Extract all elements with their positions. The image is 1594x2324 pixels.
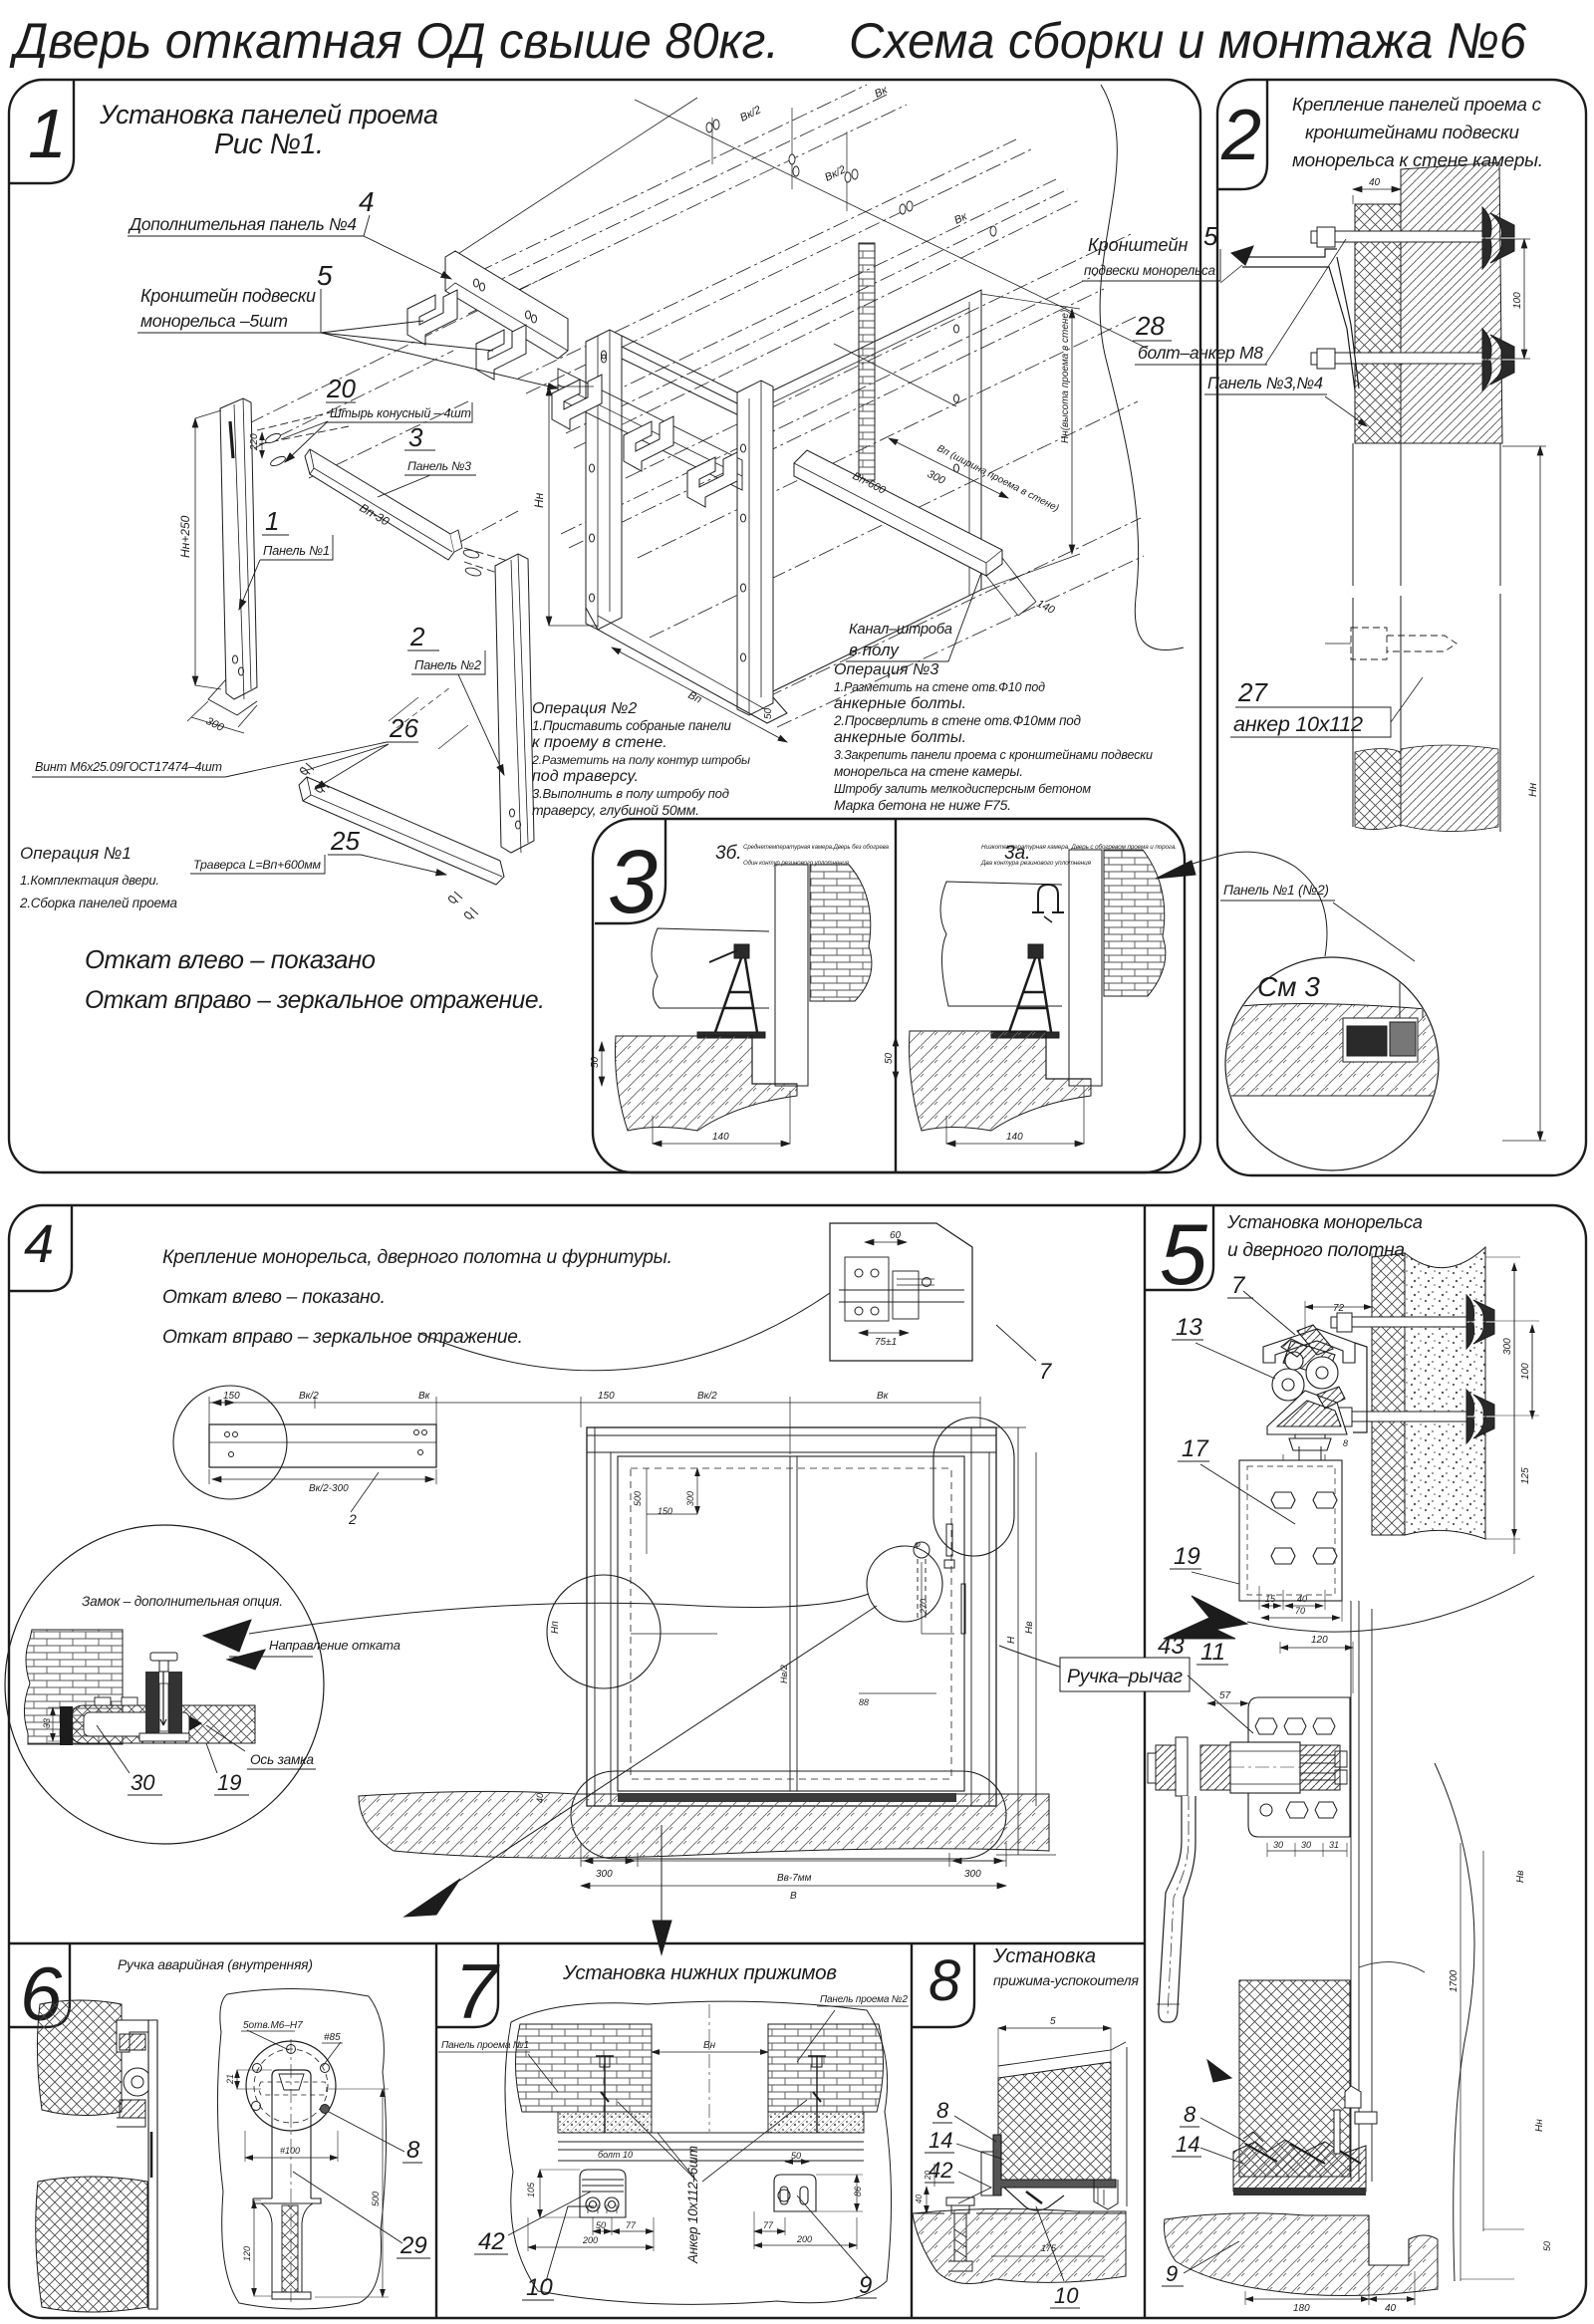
svg-text:Установка нижних прижимов: Установка нижних прижимов	[562, 1961, 837, 1984]
svg-text:4: 4	[24, 1214, 54, 1274]
svg-text:Канал–штроба: Канал–штроба	[849, 622, 952, 638]
svg-text:50: 50	[884, 1052, 895, 1064]
svg-text:40: 40	[915, 2195, 924, 2203]
svg-text:30: 30	[131, 1770, 155, 1795]
svg-text:9: 9	[859, 2272, 872, 2299]
svg-text:19: 19	[217, 1770, 241, 1795]
svg-text:5отв.М6–Н7: 5отв.М6–Н7	[243, 2020, 303, 2031]
svg-text:анкерные болты.: анкерные болты.	[834, 729, 966, 746]
svg-text:Нв: Нв	[1515, 1871, 1526, 1883]
svg-text:77: 77	[763, 2220, 774, 2230]
svg-text:10: 10	[1054, 2283, 1079, 2308]
svg-text:75±1: 75±1	[875, 1337, 897, 1348]
svg-text:Два контура резинового уплотне: Два контура резинового уплотнения	[980, 860, 1092, 867]
svg-text:200: 200	[582, 2235, 598, 2245]
svg-text:150: 150	[658, 1506, 672, 1516]
svg-text:Ручка–рычаг: Ручка–рычаг	[1067, 1666, 1183, 1687]
svg-text:Установка панелей проема: Установка панелей проема	[99, 100, 438, 129]
svg-text:50: 50	[791, 2151, 801, 2161]
svg-text:Вк: Вк	[418, 1391, 431, 1402]
svg-text:Откат вправо – зеркальное отра: Откат вправо – зеркальное отражение.	[162, 1327, 523, 1348]
svg-text:анкер 10х112: анкер 10х112	[1233, 711, 1363, 736]
svg-text:См 3: См 3	[1257, 971, 1320, 1002]
svg-text:Траверса L=Вп+600мм: Траверса L=Вп+600мм	[193, 858, 322, 872]
svg-text:1: 1	[28, 95, 67, 172]
svg-text:25: 25	[330, 826, 360, 856]
svg-text:150: 150	[598, 1391, 615, 1402]
svg-text:Кронштейн подвески: Кронштейн подвески	[140, 286, 316, 306]
svg-text:40: 40	[1297, 1594, 1307, 1604]
svg-text:В: В	[790, 1891, 797, 1902]
svg-text:Панель проема №2: Панель проема №2	[820, 1994, 908, 2005]
svg-text:120: 120	[1311, 1635, 1328, 1646]
svg-text:Нп: Нп	[550, 1621, 561, 1634]
svg-text:Направление отката: Направление отката	[269, 1638, 400, 1653]
svg-text:2.Сборка панелей проема: 2.Сборка панелей проема	[19, 896, 177, 910]
svg-text:Панель №1: Панель №1	[263, 543, 330, 558]
svg-text:Один контур резинового уплотне: Один контур резинового уплотнения	[743, 860, 850, 867]
svg-text:1700: 1700	[1449, 1969, 1460, 1992]
svg-text:50: 50	[763, 707, 774, 719]
svg-text:Вв-7мм: Вв-7мм	[777, 1873, 812, 1884]
svg-text:50: 50	[1542, 2241, 1552, 2251]
svg-text:270: 270	[919, 1599, 929, 1615]
svg-text:Ось замка: Ось замка	[250, 1752, 314, 1767]
svg-text:40: 40	[535, 1793, 545, 1803]
svg-text:Вк/2: Вк/2	[697, 1391, 717, 1402]
svg-text:500: 500	[633, 1491, 643, 1506]
svg-text:траверсу, глубиной 50мм.: траверсу, глубиной 50мм.	[532, 802, 699, 818]
svg-text:2: 2	[1220, 96, 1261, 175]
svg-text:Нн(высота проема в стене): Нн(высота проема в стене)	[1060, 310, 1071, 443]
svg-text:Замок – дополнительная опция.: Замок – дополнительная опция.	[82, 1594, 283, 1609]
svg-text:7: 7	[454, 1947, 500, 2035]
svg-text:13: 13	[1176, 1314, 1202, 1341]
svg-text:Нв: Нв	[1024, 1622, 1035, 1634]
svg-text:43: 43	[1158, 1633, 1185, 1660]
svg-text:19: 19	[1174, 1543, 1200, 1570]
svg-text:#85: #85	[324, 2032, 341, 2043]
svg-text:15: 15	[1265, 1594, 1276, 1604]
svg-text:3.Выполнить в полу штробу под: 3.Выполнить в полу штробу под	[532, 786, 729, 801]
svg-text:17: 17	[1182, 1435, 1209, 1462]
svg-text:3: 3	[408, 422, 423, 452]
svg-text:1.Приставить собраные панели: 1.Приставить собраные панели	[532, 718, 732, 733]
svg-text:70: 70	[1295, 1606, 1305, 1616]
svg-text:φ: φ	[915, 1539, 921, 1549]
svg-text:100: 100	[1512, 292, 1523, 309]
svg-text:88: 88	[859, 1697, 869, 1707]
svg-text:10: 10	[526, 2274, 553, 2301]
svg-text:300: 300	[685, 1491, 695, 1506]
svg-text:2.Просверлить в стене отв.Ф10м: 2.Просверлить в стене отв.Ф10мм под	[833, 713, 1082, 728]
svg-text:5: 5	[1050, 2016, 1056, 2027]
svg-text:Марка бетона не ниже F75.: Марка бетона не ниже F75.	[834, 797, 1011, 813]
svg-text:Установка: Установка	[992, 1945, 1096, 1967]
svg-text:монорельса на стене камеры.: монорельса на стене камеры.	[834, 764, 1023, 779]
svg-text:Установка монорельса: Установка монорельса	[1226, 1211, 1423, 1232]
svg-text:500: 500	[371, 2192, 381, 2206]
svg-text:5: 5	[1203, 221, 1218, 251]
svg-text:120: 120	[242, 2246, 252, 2261]
svg-text:Низкотемпературная камера. Две: Низкотемпературная камера. Дверь с обогр…	[981, 843, 1177, 851]
svg-text:2.Разметить на полу контур штр: 2.Разметить на полу контур штробы	[531, 753, 750, 767]
svg-text:Схема сборки и монтажа №6: Схема сборки и монтажа №6	[849, 12, 1527, 69]
svg-text:8: 8	[406, 2137, 420, 2164]
svg-text:30: 30	[1301, 1840, 1311, 1850]
svg-text:21: 21	[225, 2074, 235, 2085]
svg-text:8: 8	[1343, 1438, 1348, 1448]
svg-text:#100: #100	[280, 2146, 300, 2156]
svg-text:2: 2	[409, 622, 425, 651]
svg-text:33: 33	[42, 1718, 52, 1728]
svg-text:50: 50	[590, 1056, 601, 1068]
svg-text:подвески монорельса: подвески монорельса	[1084, 263, 1215, 278]
svg-text:Вк/2-300: Вк/2-300	[309, 1483, 349, 1494]
svg-text:7: 7	[1231, 1272, 1246, 1299]
svg-text:к проему в стене.: к проему в стене.	[532, 734, 667, 751]
svg-text:29: 29	[399, 2232, 427, 2259]
svg-text:200: 200	[796, 2234, 812, 2244]
svg-text:9: 9	[1166, 2261, 1178, 2286]
svg-text:монорельса –5шт: монорельса –5шт	[140, 311, 288, 331]
svg-text:8: 8	[1184, 2102, 1196, 2127]
svg-text:14: 14	[1176, 2132, 1199, 2157]
svg-text:Среднетемпературная камера.Две: Среднетемпературная камера.Дверь без обо…	[743, 844, 890, 851]
svg-text:40: 40	[1369, 177, 1381, 188]
svg-text:7: 7	[1039, 1359, 1052, 1384]
svg-text:под траверсу.: под траверсу.	[532, 768, 639, 785]
svg-text:Нв/2: Нв/2	[779, 1665, 789, 1683]
svg-text:Панель №3: Панель №3	[407, 459, 471, 473]
svg-text:140: 140	[712, 1132, 729, 1143]
svg-text:8: 8	[936, 2098, 949, 2123]
svg-text:Штырь конусный – 4шт: Штырь конусный – 4шт	[330, 406, 471, 420]
svg-text:40: 40	[1385, 2303, 1397, 2314]
svg-text:77: 77	[626, 2220, 637, 2230]
svg-text:Операция №1: Операция №1	[20, 844, 132, 863]
svg-text:Откат влево – показано.: Откат влево – показано.	[162, 1287, 386, 1308]
svg-text:14: 14	[929, 2128, 952, 2153]
svg-text:Нн: Нн	[1534, 2119, 1545, 2132]
svg-text:Анкер 10х112–6шт: Анкер 10х112–6шт	[685, 2146, 700, 2264]
svg-text:Нн+250: Нн+250	[178, 515, 192, 558]
svg-text:в полу: в полу	[849, 641, 900, 659]
svg-text:31: 31	[1329, 1840, 1339, 1850]
svg-text:300: 300	[596, 1869, 613, 1880]
svg-text:болт–анкер М8: болт–анкер М8	[1138, 343, 1263, 363]
svg-text:2: 2	[348, 1511, 357, 1527]
svg-text:42: 42	[478, 2228, 505, 2255]
svg-text:прижима-успокоителя: прижима-успокоителя	[993, 1973, 1139, 1989]
svg-text:Штробу залить мелкодисперсным: Штробу залить мелкодисперсным бетоном	[834, 782, 1091, 796]
svg-text:Крепление монорельса, дверного: Крепление монорельса, дверного полотна и…	[162, 1246, 672, 1268]
svg-text:150: 150	[223, 1391, 240, 1402]
svg-text:105: 105	[526, 2182, 536, 2197]
svg-text:300: 300	[1502, 1338, 1513, 1355]
svg-text:4: 4	[359, 186, 375, 217]
svg-text:Операция №3: Операция №3	[834, 661, 938, 678]
svg-text:1.Комплектация двери.: 1.Комплектация двери.	[20, 873, 159, 888]
svg-text:50: 50	[596, 2220, 606, 2230]
svg-text:175: 175	[1041, 2243, 1057, 2253]
svg-text:27: 27	[1237, 677, 1268, 707]
svg-text:20: 20	[924, 2171, 932, 2181]
svg-text:72: 72	[1333, 1303, 1345, 1314]
svg-text:100: 100	[1520, 1363, 1531, 1380]
svg-text:Панель проема №1: Панель проема №1	[441, 2040, 529, 2051]
svg-text:кронштейнами подвески: кронштейнами подвески	[1305, 122, 1520, 142]
svg-text:Панель №2: Панель №2	[414, 657, 481, 672]
svg-text:86: 86	[853, 2187, 863, 2196]
svg-text:26: 26	[389, 713, 418, 743]
svg-text:1.Разметить на стене отв.Ф10 п: 1.Разметить на стене отв.Ф10 под	[834, 680, 1045, 694]
svg-text:Вн: Вн	[703, 2040, 716, 2051]
svg-text:Ручка аварийная (внутренняя): Ручка аварийная (внутренняя)	[118, 1956, 313, 1972]
svg-text:Дверь откатная ОД свыше 80кг.: Дверь откатная ОД свыше 80кг.	[9, 13, 779, 69]
svg-text:28: 28	[1135, 311, 1165, 341]
svg-text:Операция №2: Операция №2	[532, 700, 637, 717]
svg-text:60: 60	[890, 1230, 902, 1241]
svg-text:анкерные болты.: анкерные болты.	[834, 695, 966, 712]
svg-text:Рис №1.: Рис №1.	[214, 129, 324, 160]
svg-text:3.Закрепить панели проема с к: 3.Закрепить панели проема с кронштейнами…	[834, 748, 1153, 762]
svg-text:220: 220	[249, 433, 260, 451]
svg-text:180: 180	[1293, 2303, 1310, 2314]
svg-text:20: 20	[326, 374, 356, 403]
svg-text:Панель №3,№4: Панель №3,№4	[1207, 375, 1323, 392]
svg-text:Н: Н	[1006, 1636, 1017, 1644]
svg-text:30: 30	[1273, 1840, 1283, 1850]
svg-text:Вк/2: Вк/2	[299, 1391, 319, 1402]
svg-text:Кронштейн: Кронштейн	[1088, 235, 1188, 255]
svg-text:5: 5	[1160, 1207, 1208, 1303]
svg-text:Нн: Нн	[1527, 783, 1539, 797]
svg-text:болт 10: болт 10	[598, 2150, 633, 2160]
svg-text:Нн: Нн	[532, 492, 546, 508]
svg-text:300: 300	[964, 1869, 981, 1880]
svg-text:3б.: 3б.	[715, 843, 742, 864]
svg-text:57: 57	[1219, 1690, 1231, 1701]
svg-text:Вк: Вк	[877, 1391, 890, 1402]
svg-text:8: 8	[929, 1948, 960, 2013]
svg-text:Крепление панелей проема с: Крепление панелей проема с	[1292, 94, 1542, 115]
svg-text:Откат влево – показано: Откат влево – показано	[85, 946, 376, 974]
svg-text:Дополнительная панель №4: Дополнительная панель №4	[128, 214, 357, 234]
svg-text:Винт М6х25.09ГОСТ17474–4шт: Винт М6х25.09ГОСТ17474–4шт	[35, 760, 222, 774]
svg-text:5: 5	[317, 260, 333, 291]
svg-text:125: 125	[1520, 1467, 1531, 1484]
svg-text:Откат вправо – зеркальное отра: Откат вправо – зеркальное отражение.	[85, 987, 545, 1014]
svg-text:11: 11	[1200, 1639, 1225, 1666]
svg-text:3: 3	[608, 833, 658, 932]
svg-text:140: 140	[1006, 1132, 1023, 1143]
svg-text:1: 1	[265, 506, 279, 536]
